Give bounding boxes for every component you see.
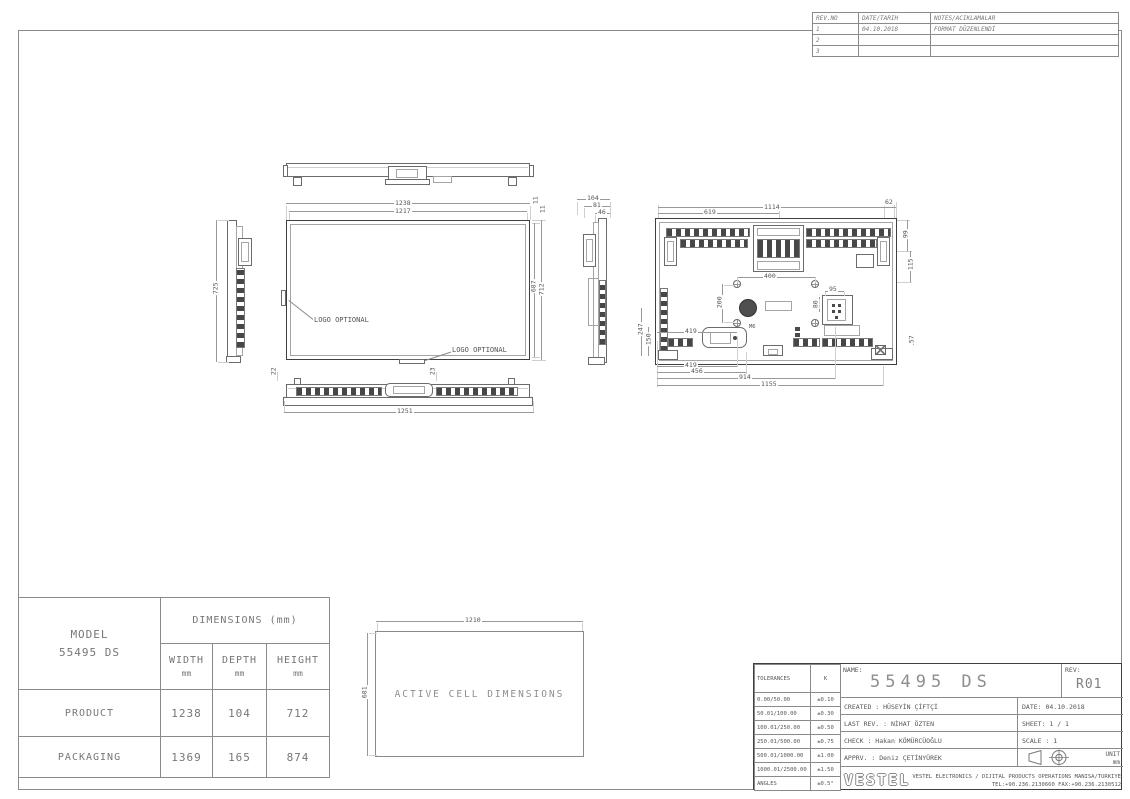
company-info: VESTEL ELECTRONICS / DIJITAL PRODUCTS OP… xyxy=(912,773,1121,790)
speaker-hatch xyxy=(793,338,820,347)
unit-value: mm xyxy=(1106,759,1120,767)
outline xyxy=(294,378,301,385)
outline xyxy=(757,228,800,236)
name-cell: NAME: 55495 DS xyxy=(840,664,1061,698)
width-value: 1369 xyxy=(161,737,213,778)
dim-label: 115 xyxy=(908,257,915,271)
footer-row: VESTEL VESTEL ELECTRONICS / DIJITAL PROD… xyxy=(840,767,1123,791)
rev-no-header: REV.NO xyxy=(813,13,859,24)
ext-line xyxy=(369,633,377,634)
depth-value: 104 xyxy=(213,690,267,737)
vent-hatch xyxy=(806,239,877,248)
outline xyxy=(765,301,792,311)
dim-label: 1155 xyxy=(760,381,778,388)
dim-label: 1217 xyxy=(394,208,412,215)
ext-line xyxy=(737,277,738,283)
tolerance-value: ±1.00 xyxy=(811,749,841,763)
sheet-row: SHEET: 1 / 1 xyxy=(1017,715,1123,732)
socket-pin xyxy=(838,304,841,307)
socket-pin xyxy=(832,304,835,307)
width-header: WIDTH mm xyxy=(161,644,213,690)
ext-line xyxy=(897,220,910,221)
drawing-sheet: REV.NO DATE/TARIH NOTES/ACIKLAMALAR 1 04… xyxy=(0,0,1130,799)
outline xyxy=(757,261,800,270)
ext-line xyxy=(218,362,229,363)
dim-label: 1251 xyxy=(396,408,414,415)
dim-label: 400 xyxy=(763,273,777,280)
active-cell-label: ACTIVE CELL DIMENSIONS xyxy=(395,689,565,700)
model-table: MODEL 55495 DS DIMENSIONS (mm) WIDTH mm … xyxy=(18,597,330,778)
speaker-hatch xyxy=(822,338,873,347)
ext-line xyxy=(369,755,377,756)
revision-row: 1 04.10.2018 FORMAT DÜZENLENDİ xyxy=(813,24,1119,35)
switch xyxy=(795,327,800,331)
ext-line xyxy=(218,220,229,221)
speaker-hatch xyxy=(668,338,693,347)
switch xyxy=(795,333,800,337)
logo-optional-label: LOGO OPTIONAL xyxy=(451,347,508,354)
outline xyxy=(880,241,887,262)
dim-label: 914 xyxy=(738,374,752,381)
outline xyxy=(283,165,288,177)
outline xyxy=(508,177,517,186)
dim-label: 150 xyxy=(646,332,653,346)
model-value: 55495 DS xyxy=(19,644,160,662)
model-label: MODEL xyxy=(19,626,160,644)
rev-note xyxy=(931,35,1119,46)
speaker-hatch xyxy=(436,387,518,396)
height-value: 712 xyxy=(267,690,330,737)
thread-label: M6 xyxy=(748,325,757,331)
dim-label: 1114 xyxy=(763,204,781,211)
revision-header-row: REV.NO DATE/TARIH NOTES/ACIKLAMALAR xyxy=(813,13,1119,24)
row-label: PRODUCT xyxy=(19,690,161,737)
corner-foot xyxy=(658,350,678,360)
rev-note xyxy=(931,46,1119,57)
tolerance-value: ±0.50 xyxy=(811,721,841,735)
vent-hatch xyxy=(806,228,891,237)
rev-date xyxy=(859,46,931,57)
column-label: HEIGHT xyxy=(267,654,329,668)
fixing-cross-icon xyxy=(875,345,886,355)
dim-label: 11 xyxy=(533,195,540,205)
rev-date-header: DATE/TARIH xyxy=(859,13,931,24)
third-angle-projection-icon xyxy=(1026,749,1078,766)
logo-bump-bottom xyxy=(399,359,425,364)
vent-hatch xyxy=(660,288,668,352)
socket-pin xyxy=(838,310,841,313)
height-value: 874 xyxy=(267,737,330,778)
depth-header: DEPTH mm xyxy=(213,644,267,690)
ext-line xyxy=(532,220,546,221)
tolerance-value: ±0.10 xyxy=(811,693,841,707)
dim-label: 712 xyxy=(539,282,546,296)
unit-label: UNIT xyxy=(1106,751,1120,759)
rev-note: FORMAT DÜZENLENDİ xyxy=(931,24,1119,35)
projection-cell: UNIT mm xyxy=(1017,749,1123,767)
vesa-hole-icon xyxy=(733,319,741,327)
revision-row: 2 xyxy=(813,35,1119,46)
column-unit: mm xyxy=(161,668,212,679)
ext-line xyxy=(815,277,816,283)
tolerance-value: ±0.75 xyxy=(811,735,841,749)
outline xyxy=(385,179,430,185)
dim-label: 687 xyxy=(531,279,538,293)
rev-value: R01 xyxy=(1076,677,1102,692)
table-row: PRODUCT 1238 104 712 xyxy=(19,690,330,737)
created-row: CREATED : HÜSEYİN ÇİFTÇİ xyxy=(840,698,1017,715)
row-label: PACKAGING xyxy=(19,737,161,778)
logo-optional-label: LOGO OPTIONAL xyxy=(313,317,370,324)
rev-date xyxy=(859,35,931,46)
tolerance-value: ±1.50 xyxy=(811,763,841,777)
dim-label: 46 xyxy=(597,209,607,216)
drawing-name-value: 55495 DS xyxy=(870,672,992,692)
logo-bump-left xyxy=(281,290,286,306)
revision-row: 3 xyxy=(813,46,1119,57)
ext-line xyxy=(530,206,531,220)
connector-box xyxy=(856,254,874,268)
bottom-view-skirt xyxy=(283,397,533,406)
title-block: TOLERANCES K 0.00/50.00±0.10 50.01/100.0… xyxy=(753,663,1122,790)
tolerance-range: 0.00/50.00 xyxy=(755,693,811,707)
ext-line xyxy=(532,357,540,358)
vestel-logo: VESTEL xyxy=(844,771,910,789)
model-cell: MODEL 55495 DS xyxy=(19,598,161,690)
dim-label: 1210 xyxy=(464,617,482,624)
dim-line xyxy=(658,213,779,214)
vent-hatch xyxy=(599,280,606,345)
outline xyxy=(588,357,605,365)
outline xyxy=(508,378,515,385)
active-cell-box: ACTIVE CELL DIMENSIONS xyxy=(375,631,584,757)
column-label: WIDTH xyxy=(161,654,212,668)
column-unit: mm xyxy=(267,668,329,679)
rev-no: 3 xyxy=(813,46,859,57)
outline xyxy=(667,241,674,262)
ext-line xyxy=(896,202,897,218)
name-label: NAME: xyxy=(843,666,863,674)
dim-label: 62 xyxy=(884,199,894,206)
depth-value: 165 xyxy=(213,737,267,778)
tolerance-range: ANGLES xyxy=(755,777,811,791)
outline xyxy=(393,386,425,394)
vent-hatch xyxy=(757,239,800,258)
dim-label: 419 xyxy=(684,328,698,335)
rev-cell: REV: R01 xyxy=(1061,664,1123,698)
outline xyxy=(293,177,302,186)
tolerance-k-header: K xyxy=(811,665,841,693)
company-line: VESTEL ELECTRONICS / DIJITAL PRODUCTS OP… xyxy=(912,773,1121,781)
ext-line xyxy=(577,202,578,215)
tolerance-range: 1000.01/2500.00 xyxy=(755,763,811,777)
tolerance-table: TOLERANCES K 0.00/50.00±0.10 50.01/100.0… xyxy=(754,664,841,791)
vesa-hole-icon xyxy=(811,319,819,327)
outline xyxy=(824,325,860,336)
ext-line xyxy=(844,292,845,296)
speaker-hatch xyxy=(296,387,382,396)
outline xyxy=(588,278,599,326)
ext-line xyxy=(724,285,734,286)
tolerance-range: 500.01/1000.00 xyxy=(755,749,811,763)
vent-hatch xyxy=(236,268,245,348)
dim-label: 99 xyxy=(903,229,910,239)
outline xyxy=(710,332,731,344)
last-rev-row: LAST REV. : NİHAT ÖZTEN xyxy=(840,715,1017,732)
ext-line xyxy=(277,372,278,381)
outline xyxy=(529,165,534,177)
tolerance-range: 250.01/500.00 xyxy=(755,735,811,749)
dim-line xyxy=(884,207,896,208)
ext-line xyxy=(724,322,734,323)
ext-line xyxy=(584,208,585,218)
dimensions-header: DIMENSIONS (mm) xyxy=(161,598,330,644)
scale-row: SCALE : 1 xyxy=(1017,732,1123,749)
ext-line xyxy=(610,202,611,218)
check-row: CHECK : Hakan KÖMÜRCÜOĞLU xyxy=(840,732,1017,749)
dim-label: 95 xyxy=(828,286,838,293)
vent-hatch xyxy=(680,239,748,248)
height-header: HEIGHT mm xyxy=(267,644,330,690)
socket-pin xyxy=(832,310,835,313)
dim-label: 456 xyxy=(690,368,704,375)
company-line: TEL:+90.236.2130660 FAX:+90.236.2130512 xyxy=(912,781,1121,789)
rev-label: REV: xyxy=(1065,666,1081,674)
ext-line xyxy=(582,623,583,631)
outline xyxy=(396,169,418,178)
apprv-row: APPRV. : Deniz ÇETİNYÜREK xyxy=(840,749,1017,767)
ext-line xyxy=(532,360,546,361)
tolerance-value: ±0.30 xyxy=(811,707,841,721)
column-label: DEPTH xyxy=(213,654,266,668)
fan-grille xyxy=(739,299,757,317)
dim-label: 57 xyxy=(909,334,916,344)
tolerance-range: 50.01/100.00 xyxy=(755,707,811,721)
ext-line xyxy=(527,213,528,220)
ext-line xyxy=(737,336,738,367)
outline xyxy=(241,242,249,262)
ext-line xyxy=(825,292,826,296)
dim-label: 1238 xyxy=(394,200,412,207)
ext-line xyxy=(835,327,836,379)
ext-line xyxy=(436,372,437,381)
ext-line xyxy=(657,341,658,387)
dim-label: 11 xyxy=(540,204,547,214)
rev-date: 04.10.2018 xyxy=(859,24,931,35)
column-unit: mm xyxy=(213,668,266,679)
socket-pin xyxy=(835,316,838,319)
outline xyxy=(586,239,593,262)
table-row: PACKAGING 1369 165 874 xyxy=(19,737,330,778)
ext-line xyxy=(897,282,912,283)
dim-label: 681 xyxy=(362,685,369,699)
ext-line xyxy=(746,352,747,374)
revision-table: REV.NO DATE/TARIH NOTES/ACIKLAMALAR 1 04… xyxy=(812,12,1119,57)
dim-label: 619 xyxy=(703,209,717,216)
dim-label: 725 xyxy=(213,281,220,295)
ext-line xyxy=(286,206,287,220)
rev-no: 2 xyxy=(813,35,859,46)
dim-label: 80 xyxy=(813,299,820,309)
rev-no: 1 xyxy=(813,24,859,35)
dim-label: 247 xyxy=(638,322,645,336)
date-row: DATE: 04.10.2018 xyxy=(1017,698,1123,715)
rev-notes-header: NOTES/ACIKLAMALAR xyxy=(931,13,1119,24)
tolerances-header: TOLERANCES xyxy=(755,665,811,693)
ext-line xyxy=(377,623,378,631)
outline xyxy=(768,349,778,355)
unit-block: UNIT mm xyxy=(1106,751,1120,767)
tolerance-value: ±0.5° xyxy=(811,777,841,791)
front-view-bezel xyxy=(290,224,526,356)
outline xyxy=(433,176,452,183)
dim-label: 200 xyxy=(717,295,724,309)
tolerance-range: 100.01/250.00 xyxy=(755,721,811,735)
ext-line xyxy=(289,213,290,220)
vent-hatch xyxy=(666,228,750,237)
ext-line xyxy=(883,366,884,386)
width-value: 1238 xyxy=(161,690,213,737)
